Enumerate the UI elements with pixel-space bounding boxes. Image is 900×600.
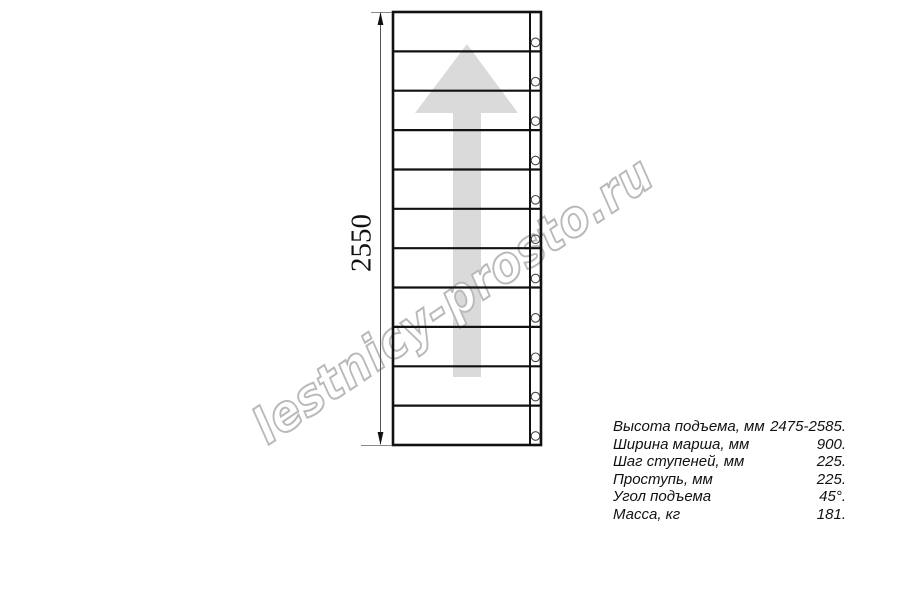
bolt-circle [531, 353, 540, 362]
spec-row-mass: Масса, кг 181. [613, 506, 846, 524]
bolt-circle [531, 196, 540, 205]
spec-value: 181. [817, 506, 846, 524]
bolt-circle [531, 314, 540, 323]
spec-label: Масса, кг [613, 506, 680, 524]
bolt-circle [531, 156, 540, 165]
spec-value: 2475-2585. [770, 418, 846, 436]
spec-value: 45°. [819, 488, 846, 506]
bolt-circle [531, 77, 540, 86]
spec-value: 225. [817, 471, 846, 489]
dimension-arrow-up-icon [378, 12, 384, 25]
bolt-circle [531, 117, 540, 126]
spec-row-width: Ширина марша, мм 900. [613, 436, 846, 454]
spec-value: 225. [817, 453, 846, 471]
spec-label: Ширина марша, мм [613, 436, 749, 454]
spec-label: Проступь, мм [613, 471, 713, 489]
bolt-circle [531, 432, 540, 441]
bolt-circle [531, 38, 540, 47]
stair-plan-page: lestnicy-prosto.ru 2550 Высота подъема, … [0, 0, 900, 600]
spec-row-step: Шаг ступеней, мм 225. [613, 453, 846, 471]
spec-row-height: Высота подъема, мм 2475-2585. [613, 418, 846, 436]
spec-label: Шаг ступеней, мм [613, 453, 744, 471]
dimension-arrow-down-icon [378, 432, 384, 445]
bolt-circle [531, 392, 540, 401]
spec-label: Высота подъема, мм [613, 418, 765, 436]
spec-row-tread: Проступь, мм 225. [613, 471, 846, 489]
spec-value: 900. [817, 436, 846, 454]
dimension-height-label: 2550 [346, 214, 378, 272]
specs-table: Высота подъема, мм 2475-2585. Ширина мар… [613, 418, 846, 523]
spec-row-angle: Угол подъема 45°. [613, 488, 846, 506]
spec-label: Угол подъема [613, 488, 711, 506]
